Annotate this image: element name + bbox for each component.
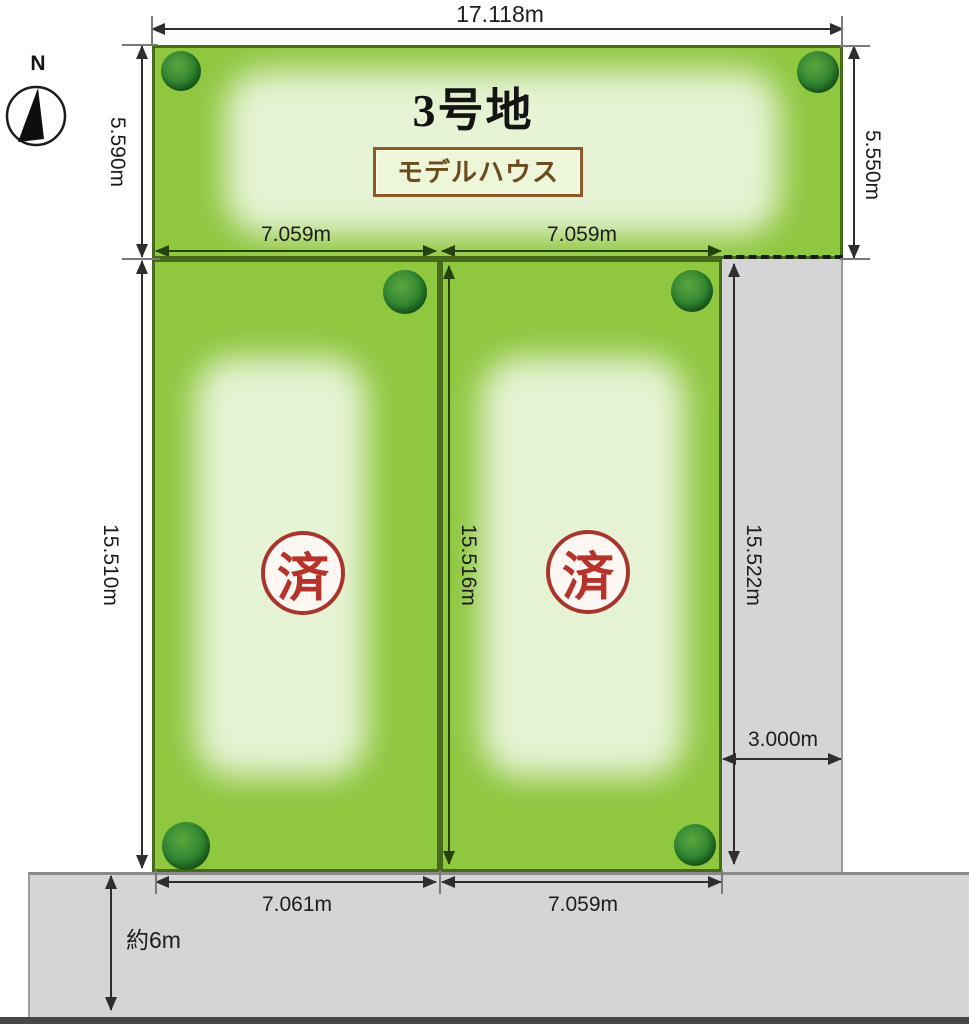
extension-tick	[840, 45, 870, 47]
dashed-boundary	[724, 255, 843, 259]
dim-line-lot-right-bottom-width	[442, 881, 721, 883]
dim-line-lot-center-depth	[448, 266, 450, 864]
extension-tick	[155, 870, 157, 894]
extension-tick	[151, 16, 153, 46]
model-house-tag: モデルハウス	[373, 147, 583, 197]
dim-label-lot-left-depth: 15.510m	[98, 495, 122, 635]
dim-line-strip-width	[723, 758, 841, 760]
dim-line-lot-left-width	[156, 250, 436, 252]
dim-line-lot-left-bottom-width	[156, 881, 436, 883]
sold-stamp-left: 済	[261, 531, 345, 615]
extension-tick	[122, 44, 158, 46]
dim-label-lot-left-width: 7.059m	[226, 223, 366, 247]
extension-tick	[841, 16, 843, 46]
dim-line-lot-left-depth	[141, 261, 143, 868]
extension-tick	[439, 870, 441, 894]
extension-tick	[721, 870, 723, 894]
dim-line-top-width	[152, 28, 843, 30]
dim-label-lot-right-bottom-width: 7.059m	[513, 893, 653, 917]
dim-line-road-width	[110, 876, 112, 1010]
dim-line-strip-depth	[733, 264, 735, 864]
dim-label-lot-center-depth: 15.516m	[456, 495, 480, 635]
sold-stamp-right: 済	[546, 530, 630, 614]
dim-label-road-width: 約6m	[126, 928, 216, 952]
dim-label-top-width: 17.118m	[420, 2, 580, 26]
tree-icon	[383, 270, 427, 314]
extension-tick	[122, 258, 160, 260]
dim-label-lot3-right-depth: 5.550m	[860, 105, 884, 225]
dim-label-lot-left-bottom-width: 7.061m	[227, 893, 367, 917]
tree-icon	[671, 270, 713, 312]
lot-layout-diagram: 3号地 モデルハウス 済 済 17.118m 5.590m 5.550m 7.0…	[0, 0, 969, 1024]
tree-icon	[161, 51, 201, 91]
tree-icon	[162, 822, 210, 870]
dim-label-strip-width: 3.000m	[713, 728, 853, 752]
tree-icon	[674, 824, 716, 866]
road-edge-line	[0, 1017, 969, 1024]
dim-line-lot-right-width	[442, 250, 721, 252]
compass-icon	[4, 84, 68, 148]
compass-north-label: N	[24, 52, 52, 76]
dim-label-strip-depth: 15.522m	[741, 495, 765, 635]
extension-tick	[840, 258, 870, 260]
lot3-name: 3号地	[343, 84, 603, 138]
dim-line-lot3-right-depth	[853, 46, 855, 258]
dim-label-lot3-left-depth: 5.590m	[105, 92, 129, 212]
dim-label-lot-right-width: 7.059m	[512, 223, 652, 247]
tree-icon	[797, 51, 839, 93]
dim-line-lot3-left-depth	[141, 46, 143, 257]
